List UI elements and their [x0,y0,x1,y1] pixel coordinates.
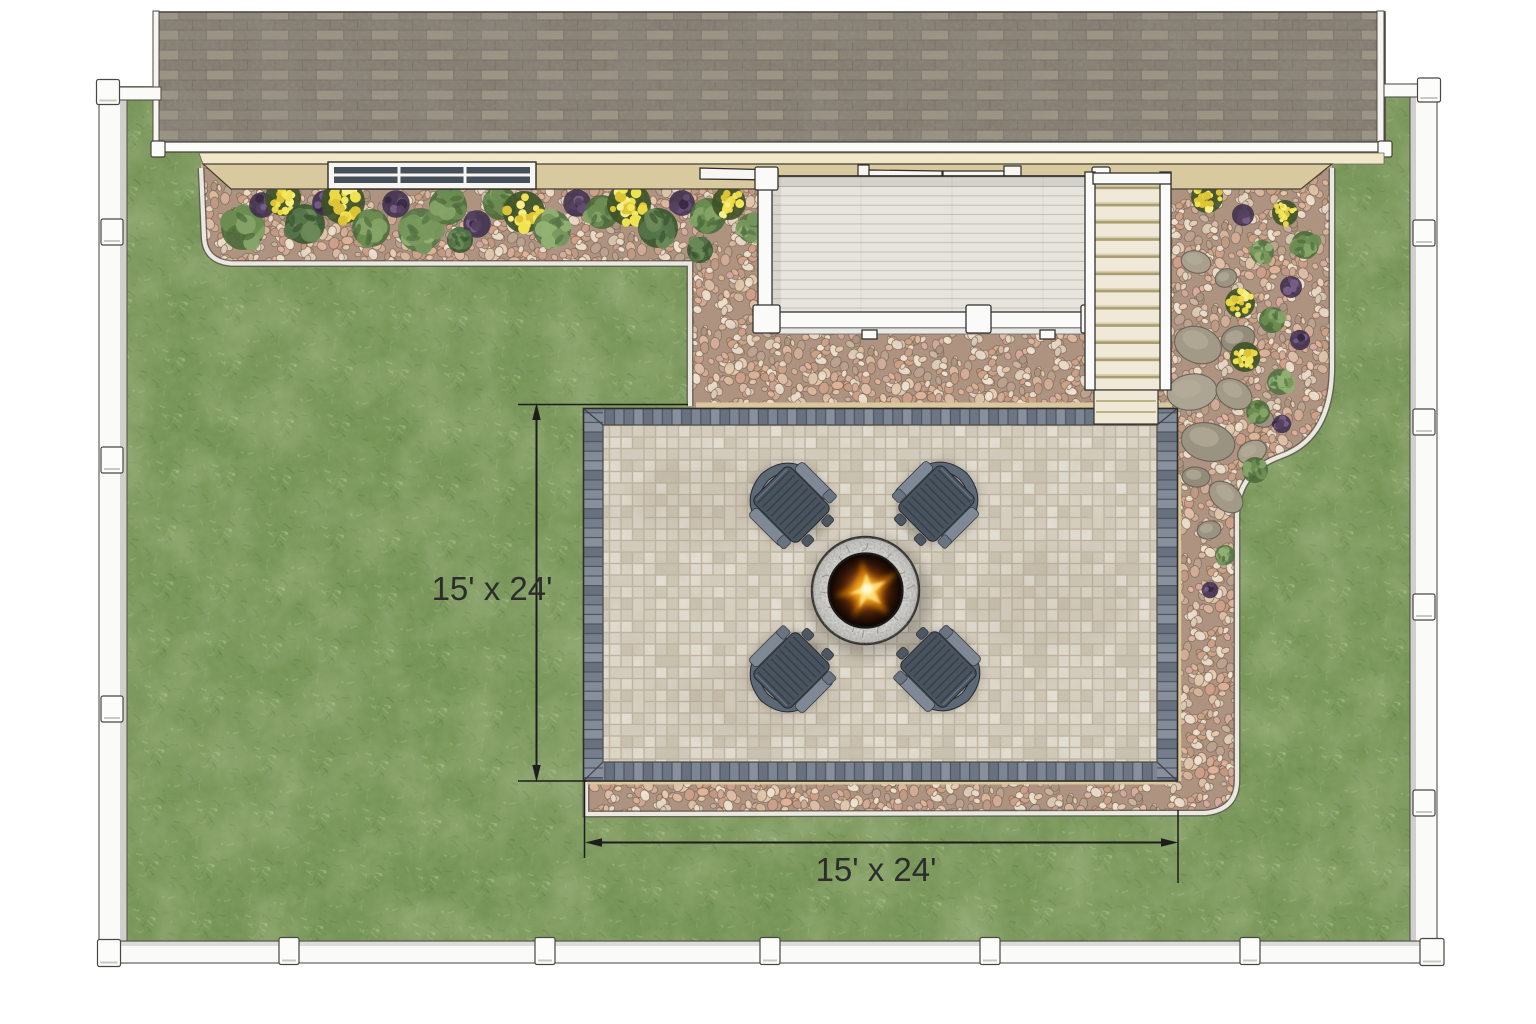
svg-text:15' x 24': 15' x 24' [432,570,553,607]
svg-text:15' x 24': 15' x 24' [816,851,937,888]
